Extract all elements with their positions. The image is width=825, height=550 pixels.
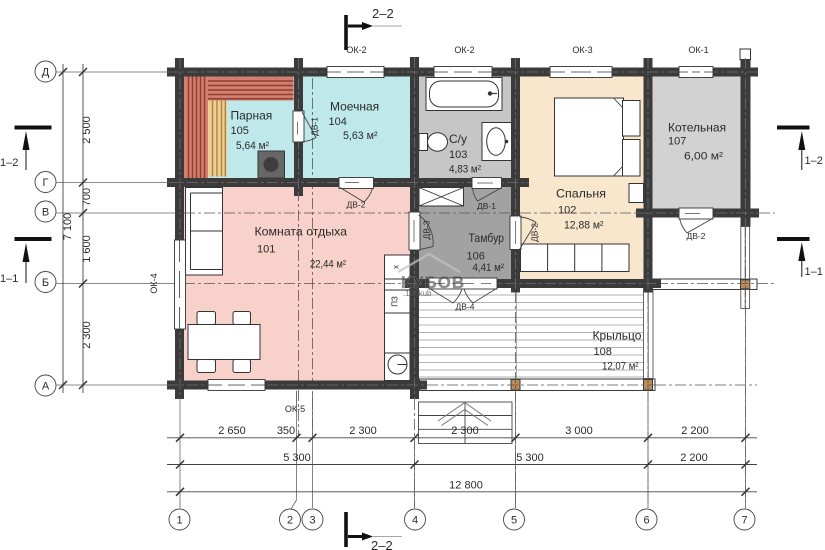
svg-text:3: 3 (309, 515, 315, 527)
svg-text:А: А (42, 381, 50, 393)
svg-text:ДВ-1: ДВ-1 (310, 117, 320, 136)
svg-text:105: 105 (231, 125, 249, 137)
svg-text:ОК-4: ОК-4 (149, 273, 159, 293)
svg-text:108: 108 (594, 346, 612, 358)
svg-text:6,00 м²: 6,00 м² (684, 151, 723, 163)
svg-text:700: 700 (81, 188, 93, 206)
svg-text:22,44 м²: 22,44 м² (310, 259, 346, 271)
svg-text:7: 7 (741, 515, 747, 527)
svg-text:5,64 м²: 5,64 м² (236, 140, 269, 152)
svg-text:6: 6 (643, 515, 649, 527)
svg-text:ДВ-2: ДВ-2 (687, 231, 706, 241)
svg-text:ДВ-1: ДВ-1 (477, 201, 496, 211)
svg-text:Крыльцо: Крыльцо (593, 329, 642, 343)
svg-text:12,07 м²: 12,07 м² (602, 361, 639, 373)
svg-text:Д: Д (42, 67, 50, 79)
svg-text:2 300: 2 300 (349, 425, 377, 437)
svg-text:Г: Г (43, 177, 49, 189)
svg-text:х: х (392, 265, 401, 269)
svg-text:102: 102 (558, 205, 576, 217)
svg-text:104: 104 (329, 116, 347, 128)
svg-text:12,88 м²: 12,88 м² (564, 220, 604, 232)
svg-text:1 600: 1 600 (81, 235, 93, 263)
svg-text:2: 2 (287, 515, 293, 527)
svg-text:Б: Б (42, 277, 49, 289)
svg-text:5 300: 5 300 (516, 452, 544, 464)
svg-text:ОК-2: ОК-2 (454, 45, 474, 55)
svg-text:ОК-3: ОК-3 (572, 45, 592, 55)
svg-text:4: 4 (412, 515, 418, 527)
svg-text:4,83 м²: 4,83 м² (449, 164, 481, 176)
svg-text:Котельная: Котельная (668, 121, 726, 135)
svg-text:107: 107 (668, 136, 686, 148)
svg-text:ОК-5: ОК-5 (285, 404, 305, 414)
svg-text:5 300: 5 300 (283, 452, 311, 464)
svg-text:Моечная: Моечная (330, 100, 379, 114)
svg-text:3 000: 3 000 (565, 425, 593, 437)
svg-text:ОК-2: ОК-2 (346, 45, 366, 55)
svg-text:2 650: 2 650 (218, 425, 246, 437)
svg-text:Тамбур: Тамбур (469, 231, 505, 245)
svg-text:1–1: 1–1 (805, 266, 823, 278)
svg-text:7 100: 7 100 (62, 213, 74, 241)
svg-text:Комната отдыха: Комната отдыха (255, 225, 348, 239)
svg-text:ДВ-2: ДВ-2 (347, 200, 366, 210)
svg-text:2 300: 2 300 (451, 425, 479, 437)
svg-text:2 200: 2 200 (680, 452, 708, 464)
svg-text:Парная: Парная (231, 109, 273, 123)
svg-text:1–1: 1–1 (0, 273, 18, 285)
svg-text:1–2: 1–2 (805, 155, 823, 167)
svg-text:С/у: С/у (449, 132, 467, 146)
svg-text:350: 350 (277, 425, 295, 437)
svg-text:В: В (42, 207, 49, 219)
svg-text:.100kub: .100kub (403, 289, 432, 298)
svg-text:5: 5 (511, 515, 517, 527)
svg-text:ДВ-4: ДВ-4 (456, 302, 475, 312)
svg-text:106: 106 (467, 251, 485, 263)
svg-text:ДВ-2: ДВ-2 (530, 223, 540, 242)
svg-text:2–2: 2–2 (371, 538, 393, 550)
svg-text:ПЗ: ПЗ (391, 296, 400, 307)
svg-text:101: 101 (257, 244, 275, 256)
svg-text:2–2: 2–2 (372, 6, 394, 21)
svg-text:12 800: 12 800 (449, 480, 483, 492)
svg-text:ДВ-3: ДВ-3 (422, 220, 432, 239)
svg-text:5,63 м²: 5,63 м² (343, 130, 378, 142)
svg-text:4,41 м²: 4,41 м² (473, 262, 505, 274)
svg-text:2 300: 2 300 (81, 321, 93, 349)
svg-text:2 500: 2 500 (81, 116, 93, 144)
svg-text:1–2: 1–2 (0, 157, 18, 169)
svg-text:ОК-1: ОК-1 (688, 45, 708, 55)
svg-text:1: 1 (176, 515, 182, 527)
svg-text:Спальня: Спальня (556, 187, 606, 201)
svg-text:2 200: 2 200 (681, 425, 709, 437)
svg-text:103: 103 (449, 149, 467, 161)
